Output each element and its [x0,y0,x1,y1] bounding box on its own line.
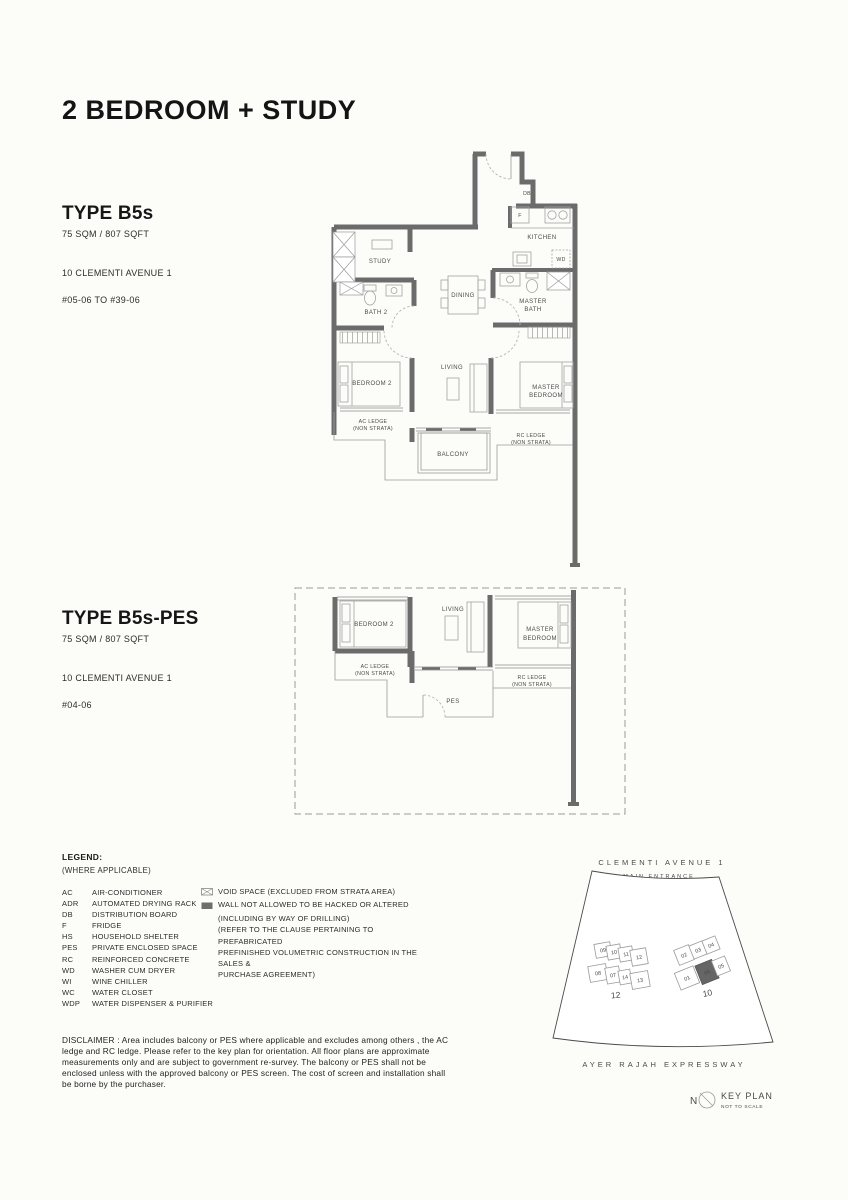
legend-note-void: VOID SPACE (EXCLUDED FROM STRATA AREA) [201,886,437,899]
legend-item: HSHOUSEHOLD SHELTER [62,931,213,942]
type-b5s-info: TYPE B5s 75 SQM / 807 SQFT 10 CLEMENTI A… [62,203,172,307]
plan1-label-living: LIVING [441,365,463,371]
plan2-labels: BEDROOM 2 LIVING MASTER BEDROOM AC LEDGE… [354,607,557,705]
legend-note-line: (INCLUDING BY WAY OF DRILLING) [201,913,437,924]
legend-item: WIWINE CHILLER [62,976,213,987]
unit-label: 13 [637,978,644,985]
legend-abbr: WDP [62,998,92,1009]
legend-abbr: WC [62,987,92,998]
plan2-label-bedroom2: BEDROOM 2 [354,622,394,628]
legend: LEGEND: (WHERE APPLICABLE) ACAIR-CONDITI… [62,852,213,1009]
type-b5s-pes-info: TYPE B5s-PES 75 SQM / 807 SQFT 10 CLEMEN… [62,608,199,712]
road-label-ayer-rajah: AYER RAJAH EXPRESSWAY [582,1060,745,1069]
legend-item: PESPRIVATE ENCLOSED SPACE [62,942,213,953]
unit-label: 10 [611,950,618,957]
plan1-label-study: STUDY [369,259,391,265]
legend-abbr: PES [62,942,92,953]
unit-label: 12 [636,955,643,962]
keyplan-title: KEY PLAN [721,1091,773,1101]
legend-desc: FRIDGE [92,920,122,931]
legend-desc: REINFORCED CONCRETE [92,954,190,965]
plan2-label-rc-ledge-1: RC LEDGE [518,675,547,681]
legend-abbr: F [62,920,92,931]
legend-item: WDWASHER CUM DRYER [62,965,213,976]
legend-desc: DISTRIBUTION BOARD [92,909,177,920]
void-space-text: VOID SPACE (EXCLUDED FROM STRATA AREA) [218,886,395,899]
legend-abbr: WI [62,976,92,987]
plan1-label-fridge: F [518,213,521,219]
type-b5s-pes-area: 75 SQM / 807 SQFT [62,634,199,644]
unit-label: 08 [595,971,602,978]
legend-title: LEGEND: [62,852,213,862]
plan1-walls [334,154,580,567]
legend-item: ACAIR-CONDITIONER [62,887,213,898]
legend-note-line: PREFINISHED VOLUMETRIC CONSTRUCTION IN T… [201,947,437,970]
type-b5s-pes-name: TYPE B5s-PES [62,608,199,630]
void-space-symbol [201,886,218,899]
legend-abbr: DB [62,909,92,920]
unit-label: 14 [622,975,629,982]
plan1-label-kitchen: KITCHEN [527,235,556,241]
floorplan-type-b5s: DB F KITCHEN WD STUDY BATH 2 DINING MAST… [330,140,590,570]
type-b5s-levels: #05-06 TO #39-06 [62,295,140,305]
legend-desc: AUTOMATED DRYING RACK [92,898,197,909]
type-b5s-pes-address: 10 CLEMENTI AVENUE 1 #04-06 [62,658,199,712]
type-b5s-area: 75 SQM / 807 SQFT [62,229,172,239]
hack-wall-symbol [201,899,218,912]
legend-note-line: (REFER TO THE CLAUSE PERTAINING TO PREFA… [201,924,437,947]
legend-subtitle: (WHERE APPLICABLE) [62,866,213,875]
legend-item: DBDISTRIBUTION BOARD [62,909,213,920]
unit-label: 11 [623,952,630,959]
legend-item: WDPWATER DISPENSER & PURIFIER [62,998,213,1009]
plan1-label-master-bath-2: BATH [524,307,541,313]
plan1-label-rc-ledge-1: RC LEDGE [517,433,546,439]
plan1-label-ac-ledge-1: AC LEDGE [359,419,388,425]
plan1-label-bedroom2: BEDROOM 2 [352,381,392,387]
legend-desc: WINE CHILLER [92,976,148,987]
plan1-label-balcony: BALCONY [437,452,468,458]
keyplan-caption: N KEY PLAN NOT TO SCALE [690,1091,773,1110]
plan1-windows [340,408,570,413]
plan1-label-db: DB [523,191,531,197]
plan1-label-master-bath-1: MASTER [519,299,547,305]
legend-desc: WASHER CUM DRYER [92,965,175,976]
plan1-label-ac-ledge-2: (NON STRATA) [353,426,393,432]
road-label-clementi-avenue: CLEMENTI AVENUE 1 [598,858,725,867]
type-b5s-address-line: 10 CLEMENTI AVENUE 1 [62,268,172,278]
legend-desc: HOUSEHOLD SHELTER [92,931,179,942]
plan2-doors [423,695,445,717]
legend-item: ADRAUTOMATED DRYING RACK [62,898,213,909]
floorplan-type-b5s-pes: BEDROOM 2 LIVING MASTER BEDROOM AC LEDGE… [290,583,630,823]
note-text: (INCLUDING BY WAY OF DRILLING) [218,913,350,924]
legend-abbr: ADR [62,898,92,909]
legend-desc: PRIVATE ENCLOSED SPACE [92,942,198,953]
plan1-label-master-bed-1: MASTER [532,385,560,391]
legend-items: ACAIR-CONDITIONER ADRAUTOMATED DRYING RA… [62,887,213,1009]
plan1-label-master-bed-2: BEDROOM [529,393,563,399]
unit-label: 07 [610,973,617,980]
legend-abbr: RC [62,954,92,965]
plan2-label-ac-ledge-2: (NON STRATA) [355,671,395,677]
legend-note-line: PURCHASE AGREEMENT) [201,969,437,980]
legend-abbr: HS [62,931,92,942]
legend-abbr: WD [62,965,92,976]
key-plan: CLEMENTI AVENUE 1 MAIN ENTRANCE AYER RAJ… [540,845,820,1130]
plan1-label-dining: DINING [451,293,474,299]
note-text: PURCHASE AGREEMENT) [218,969,315,980]
keyplan-scale-note: NOT TO SCALE [721,1104,763,1110]
plan2-label-master-bed-2: BEDROOM [523,636,557,642]
legend-notes: VOID SPACE (EXCLUDED FROM STRATA AREA) W… [201,886,437,981]
legend-desc: WATER DISPENSER & PURIFIER [92,998,213,1009]
legend-item: RCREINFORCED CONCRETE [62,954,213,965]
legend-abbr: AC [62,887,92,898]
plan1-label-rc-ledge-2: (NON STRATA) [511,440,551,446]
hack-wall-text: WALL NOT ALLOWED TO BE HACKED OR ALTERED [218,899,409,912]
type-b5s-pes-address-line: 10 CLEMENTI AVENUE 1 [62,673,172,683]
plan1-label-wd: WD [556,257,565,263]
type-b5s-pes-levels: #04-06 [62,700,92,710]
floorplan-page: 2 BEDROOM + STUDY TYPE B5s 75 SQM / 807 … [0,0,848,1200]
legend-item: FFRIDGE [62,920,213,931]
page-title: 2 BEDROOM + STUDY [62,95,356,126]
site-boundary [553,871,773,1047]
note-text: (REFER TO THE CLAUSE PERTAINING TO PREFA… [218,924,437,947]
legend-item: WCWATER CLOSET [62,987,213,998]
plan2-label-master-bed-1: MASTER [526,627,554,633]
plan2-label-pes: PES [446,699,459,705]
legend-desc: WATER CLOSET [92,987,153,998]
note-text: PREFINISHED VOLUMETRIC CONSTRUCTION IN T… [218,947,437,970]
north-label: N [690,1096,697,1107]
type-b5s-name: TYPE B5s [62,203,172,225]
block-12-label: 12 [610,990,621,1001]
plan2-label-rc-ledge-2: (NON STRATA) [512,682,552,688]
type-b5s-address: 10 CLEMENTI AVENUE 1 #05-06 TO #39-06 [62,253,172,307]
legend-note-wall: WALL NOT ALLOWED TO BE HACKED OR ALTERED [201,899,437,912]
legend-desc: AIR-CONDITIONER [92,887,163,898]
plan2-label-ac-ledge-1: AC LEDGE [361,664,390,670]
disclaimer-text: DISCLAIMER : Area includes balcony or PE… [62,1035,452,1090]
unit-label: 09 [600,948,607,955]
plan2-label-living: LIVING [442,607,464,613]
plan1-label-bath2: BATH 2 [365,310,388,316]
